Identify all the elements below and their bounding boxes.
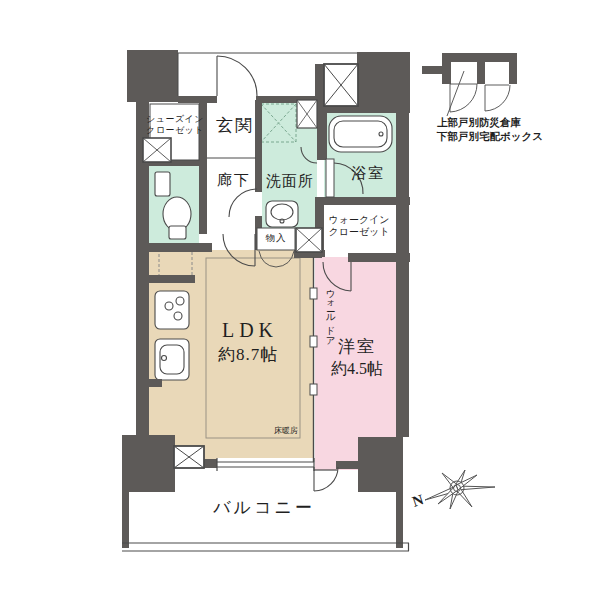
feature-label-floor-heating: 床暖房 [274,426,298,436]
floor-plan: シューズイン クローゼット 玄関 廊下 洗面所 浴室 ウォークイン クローゼット… [0,0,600,600]
room-label-washroom: 洗面所 [266,172,314,190]
shoes-closet-line1: シューズイン [146,114,204,124]
pillar-top-right [357,52,410,106]
kitchen-sink-icon [155,339,189,380]
room-label-hallway: 廊下 [217,171,251,189]
feature-label-wall-door: ウォールドア [324,282,335,342]
storage-note-line1: 上部戸別防災倉庫 [437,117,521,128]
pillar-top-left [127,50,178,102]
storage-box-detail-walls [422,53,517,84]
hatched-box-icon [143,138,171,162]
balcony-wall-right [396,492,403,548]
room-label-walk-in-closet: ウォークイン クローゼット [328,214,389,238]
pillar-bottom-right [358,437,403,492]
wic-line1: ウォークイン [328,214,389,225]
washbasin-icon [266,201,298,227]
room-label-western-room: 洋室 [338,337,376,357]
room-size-western-room: 約4.5帖 [331,359,383,378]
room-label-entrance: 玄関 [216,116,254,136]
bath-door-leaf [326,159,334,197]
balcony-wall-left [122,492,129,548]
room-label-bathroom: 浴室 [351,164,385,182]
entrance-door-arc [217,56,257,96]
hatched-box-icon [324,64,358,106]
wall-right [396,106,409,437]
compass-rose-icon [425,470,495,509]
balcony-railing [122,543,409,551]
room-label-storage: 物入 [266,233,287,244]
washroom-door-arc [229,189,257,217]
hatched-box-icon [296,228,322,252]
wic-line2: クローゼット [328,226,389,237]
hatched-box-icon [174,446,204,468]
room-label-balcony: バルコニー [213,498,315,518]
stove-icon [155,291,189,329]
room-label-ldk: LDK [222,318,278,342]
room-size-ldk: 約8.7帖 [218,345,278,365]
hatched-box-icon [297,100,317,128]
shoes-closet-line2: クローゼット [146,125,204,135]
pillar-bottom-left [122,435,175,492]
storage-note-line2: 下部戸別宅配ボックス [437,131,543,142]
bathtub-icon [329,116,392,152]
room-label-shoes-in-closet: シューズイン クローゼット [146,114,204,136]
storage-box-note: 上部戸別防災倉庫 下部戸別宅配ボックス [437,116,543,143]
